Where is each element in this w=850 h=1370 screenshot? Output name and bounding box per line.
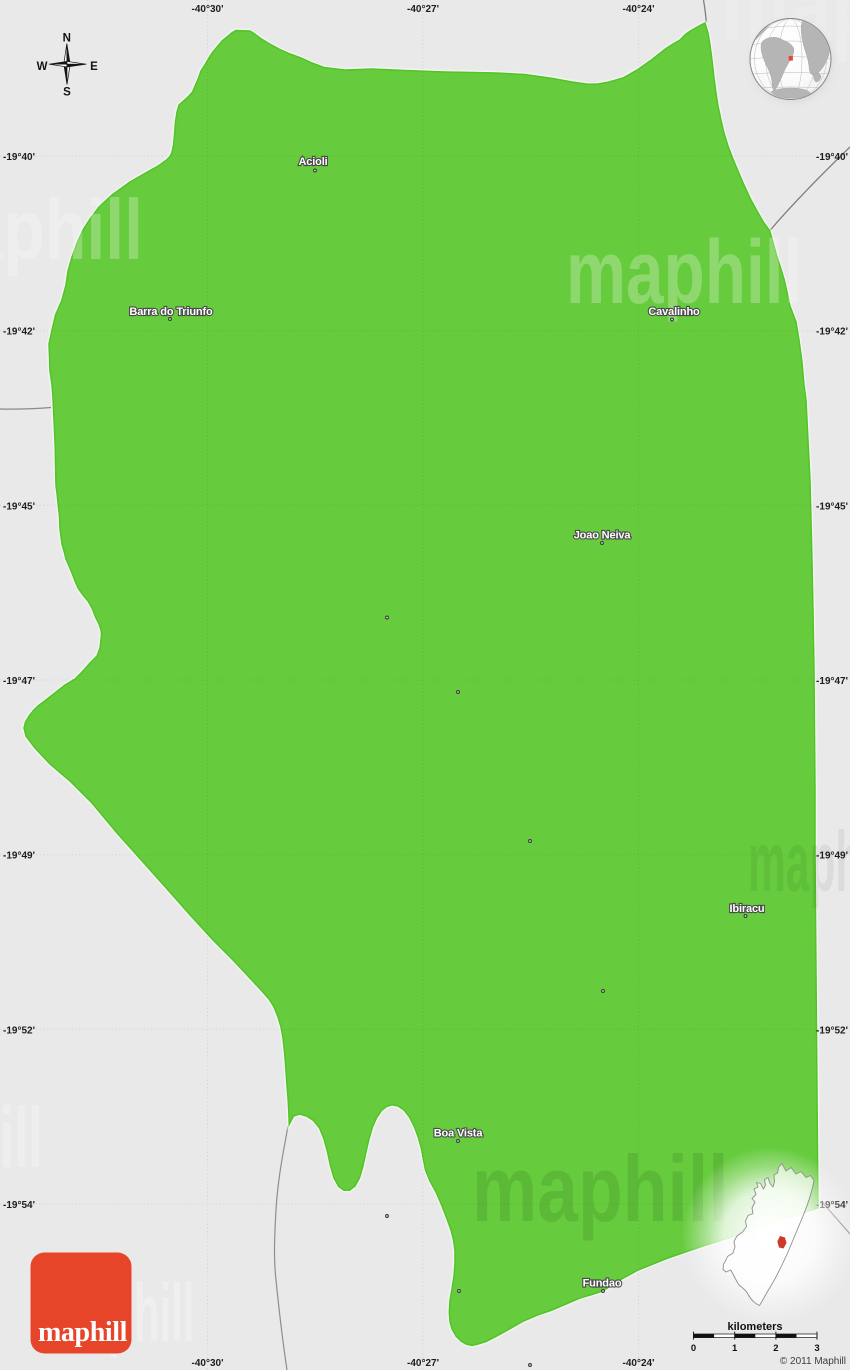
svg-text:maphill: maphill [748, 815, 850, 910]
svg-text:Acioli: Acioli [298, 156, 327, 168]
svg-text:-19°42': -19°42' [3, 327, 35, 338]
svg-text:© 2011 Maphill: © 2011 Maphill [780, 1356, 846, 1367]
svg-text:2: 2 [773, 1343, 778, 1354]
svg-text:-19°40': -19°40' [3, 152, 35, 163]
svg-text:-40°24': -40°24' [623, 1358, 655, 1369]
svg-text:-19°42': -19°42' [816, 327, 848, 338]
svg-text:Joao Neiva: Joao Neiva [574, 530, 632, 542]
svg-text:-40°27': -40°27' [407, 1358, 439, 1369]
svg-text:-19°49': -19°49' [3, 851, 35, 862]
svg-text:Fundao: Fundao [583, 1278, 622, 1290]
svg-text:-40°24': -40°24' [623, 4, 655, 15]
svg-text:1: 1 [732, 1343, 738, 1354]
svg-text:-40°30': -40°30' [192, 4, 224, 15]
svg-text:-19°52': -19°52' [816, 1025, 848, 1036]
svg-text:-19°54': -19°54' [3, 1200, 35, 1211]
svg-text:maphill: maphill [38, 1317, 128, 1348]
svg-text:-19°45': -19°45' [816, 501, 848, 512]
svg-text:S: S [63, 87, 71, 99]
svg-text:Boa Vista: Boa Vista [434, 1128, 484, 1140]
svg-text:0: 0 [691, 1343, 696, 1354]
svg-text:maphill: maphill [0, 1091, 42, 1186]
svg-text:-19°40': -19°40' [816, 152, 848, 163]
svg-text:N: N [63, 33, 71, 45]
svg-text:maphill: maphill [0, 183, 143, 278]
svg-text:Cavalinho: Cavalinho [648, 306, 700, 318]
svg-text:kilometers: kilometers [727, 1321, 782, 1333]
svg-text:-19°47': -19°47' [816, 676, 848, 687]
svg-text:-40°30': -40°30' [192, 1358, 224, 1369]
svg-text:-19°45': -19°45' [3, 501, 35, 512]
svg-text:-40°27': -40°27' [407, 4, 439, 15]
svg-text:-19°52': -19°52' [3, 1025, 35, 1036]
svg-text:Ibiracu: Ibiracu [729, 903, 764, 915]
svg-text:3: 3 [814, 1343, 819, 1354]
svg-text:E: E [90, 61, 98, 73]
svg-text:Barra do Triunfo: Barra do Triunfo [129, 306, 213, 318]
svg-text:-19°47': -19°47' [3, 676, 35, 687]
svg-text:W: W [37, 61, 48, 73]
svg-text:-19°49': -19°49' [816, 851, 848, 862]
